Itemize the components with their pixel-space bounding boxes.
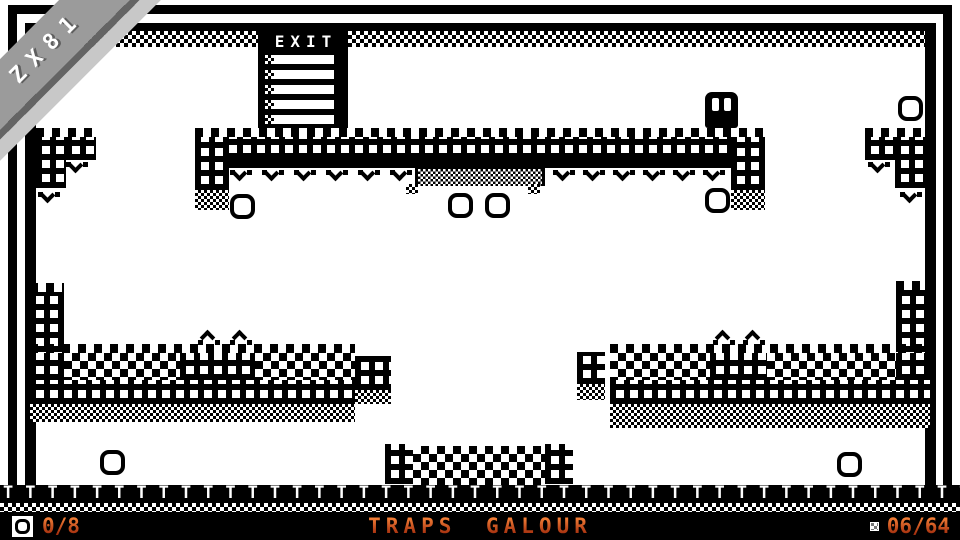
lattice-block bbox=[710, 353, 767, 380]
coin bbox=[100, 450, 125, 475]
teeth-block bbox=[610, 344, 930, 353]
conveyor-block bbox=[415, 166, 545, 186]
lattice-block bbox=[731, 137, 765, 190]
lattice-block bbox=[30, 380, 355, 404]
checker-block bbox=[767, 353, 896, 380]
teeth-block bbox=[30, 283, 64, 292]
spike-down-icon bbox=[673, 170, 695, 188]
lattice-block bbox=[385, 444, 413, 484]
spike-down-icon bbox=[326, 170, 348, 188]
lattice-block bbox=[577, 352, 605, 384]
status-bar: 0/8 TRAPS GALOUR 06/64 bbox=[0, 512, 960, 540]
spike-down-icon bbox=[583, 170, 605, 188]
hud-blocks: 06/64 bbox=[870, 512, 950, 540]
spike-down-icon bbox=[553, 170, 575, 188]
spike-down-icon bbox=[390, 170, 412, 188]
spike-down-icon bbox=[358, 170, 380, 188]
checker-block bbox=[413, 446, 545, 485]
checker-block bbox=[64, 353, 180, 380]
dither-block bbox=[577, 384, 605, 400]
playfield bbox=[0, 0, 960, 540]
spike-down-icon bbox=[38, 192, 60, 210]
game-screen[interactable]: EXIT ZX81 TTTTTTTTTTTTTTTTTTTTTTTTTTTTTT… bbox=[0, 0, 960, 540]
coin bbox=[230, 194, 255, 219]
checker-block bbox=[610, 353, 710, 380]
lattice-block bbox=[30, 292, 64, 352]
lattice-block bbox=[895, 137, 925, 188]
ground-rail-dither bbox=[0, 503, 960, 512]
dither-block bbox=[731, 190, 765, 210]
spike-down-icon bbox=[643, 170, 665, 188]
spike-up-icon bbox=[743, 327, 765, 345]
lattice-block bbox=[896, 353, 930, 380]
spike-down-icon bbox=[66, 162, 88, 180]
spike-down-icon bbox=[703, 170, 725, 188]
lattice-block bbox=[195, 137, 765, 159]
ladder-rung bbox=[274, 115, 334, 124]
dither4-block bbox=[36, 31, 925, 47]
dither-block bbox=[195, 190, 229, 210]
lattice-block bbox=[36, 137, 66, 188]
dither-block bbox=[528, 184, 540, 194]
spike-down-icon bbox=[262, 170, 284, 188]
lattice-block bbox=[865, 137, 895, 160]
lattice-block bbox=[610, 380, 930, 404]
lattice-block bbox=[180, 353, 255, 380]
spike-up-icon bbox=[230, 327, 252, 345]
teeth-block bbox=[36, 128, 96, 137]
spike-down-icon bbox=[613, 170, 635, 188]
rail-posts: TTTTTTTTTTTTTTTTTTTTTTTTTTTTTTTTTTTTTTTT… bbox=[0, 485, 960, 502]
spike-up-icon bbox=[198, 327, 220, 345]
ladder-rung bbox=[274, 70, 334, 79]
lattice-block bbox=[896, 290, 930, 352]
exit-sign: EXIT bbox=[258, 27, 348, 128]
dither-block bbox=[610, 404, 930, 428]
teeth-block bbox=[896, 281, 930, 290]
coin bbox=[705, 188, 730, 213]
lattice-block bbox=[195, 137, 229, 190]
teeth-block bbox=[30, 344, 355, 353]
enemy-sprite bbox=[705, 92, 738, 128]
checker-block bbox=[255, 353, 355, 380]
teeth-block bbox=[865, 128, 925, 137]
coin bbox=[485, 193, 510, 218]
block-counter: 06/64 bbox=[887, 514, 950, 538]
teeth-block bbox=[195, 128, 765, 137]
spike-down-icon bbox=[868, 162, 890, 180]
lattice-block bbox=[30, 353, 64, 380]
lattice-block bbox=[355, 356, 391, 390]
ground-rail: TTTTTTTTTTTTTTTTTTTTTTTTTTTTTTTTTTTTTTTT… bbox=[0, 485, 960, 503]
ladder-rung bbox=[274, 85, 334, 94]
spike-down-icon bbox=[294, 170, 316, 188]
dither-block bbox=[30, 404, 355, 422]
ladder-rung bbox=[274, 55, 334, 64]
block-icon bbox=[870, 522, 879, 531]
coin bbox=[837, 452, 862, 477]
lattice-block bbox=[66, 137, 96, 160]
coin bbox=[898, 96, 923, 121]
dither-block bbox=[355, 390, 391, 404]
level-title: TRAPS GALOUR bbox=[0, 512, 960, 540]
lattice-block bbox=[545, 444, 573, 484]
exit-label: EXIT bbox=[258, 27, 348, 51]
coin bbox=[448, 193, 473, 218]
spike-up-icon bbox=[713, 327, 735, 345]
ladder-rung bbox=[274, 100, 334, 109]
spike-down-icon bbox=[230, 170, 252, 188]
spike-down-icon bbox=[900, 192, 922, 210]
